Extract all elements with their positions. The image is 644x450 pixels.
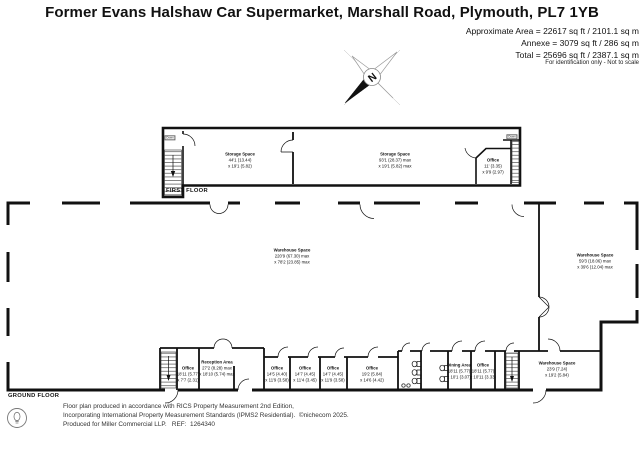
floorplan-page: Former Evans Halshaw Car Supermarket, Ma… xyxy=(0,0,644,450)
room-label-warehouse-small: Warehouse Space 23'9 (7.24) x 19'2 (5.84… xyxy=(539,360,576,377)
room-label-office-c: Office 14'7 (4.45) x 11'9 (3.58) xyxy=(321,365,344,382)
stairs-down-label: Down xyxy=(506,134,517,139)
footer-line-2: Incorporating International Property Mea… xyxy=(63,411,349,420)
ground-floor-label: GROUND FLOOR xyxy=(8,393,59,399)
room-label-office-small: Office 18'11 (5.77) x 7'7 (2.31) xyxy=(177,365,199,382)
footer-credits: Floor plan produced in accordance with R… xyxy=(63,402,349,430)
room-label-office-b: Office 14'7 (4.45) x 11'4 (3.45) xyxy=(293,365,316,382)
room-label-storage-2: Storage Space 93'1 (28.37) max x 19'1 (5… xyxy=(378,151,411,168)
room-label-storage-1: Storage Space 44'1 (13.44) x 19'1 (5.82) xyxy=(225,151,255,168)
room-label-office-e: Office 18'11 (5.77) x 10'11 (3.33) xyxy=(470,362,496,379)
footer-line-3: Produced for Miller Commercial LLP. REF:… xyxy=(63,420,349,429)
room-label-warehouse-main: Warehouse Space 220'9 (67.30) max x 78'2… xyxy=(274,247,311,264)
stairs xyxy=(512,142,520,183)
room-label-warehouse-right: Warehouse Space 59'3 (18.06) max x 39'6 … xyxy=(577,252,614,269)
room-label-reception: Reception Area 27'2 (8.28) max x 18'10 (… xyxy=(199,359,234,376)
stairs-down-label: Down xyxy=(164,135,175,140)
room-label-dining: Dining Area 18'11 (5.77) x 10'1 (3.07) xyxy=(447,362,471,379)
room-label-office-a: Office 14'5 (4.40) x 11'9 (3.58) xyxy=(265,365,288,382)
room-label-office-d: Office 19'2 (5.84) x 14'6 (4.42) xyxy=(360,365,384,382)
first-floor-plan xyxy=(163,128,520,197)
footer-line-1: Floor plan produced in accordance with R… xyxy=(63,402,349,411)
room-label-ff-office: Office 11' (3.35) x 9'9 (2.97) xyxy=(482,157,503,174)
first-floor-label: FIRST FLOOR xyxy=(166,188,208,194)
compass-north-icon: N xyxy=(344,50,400,105)
